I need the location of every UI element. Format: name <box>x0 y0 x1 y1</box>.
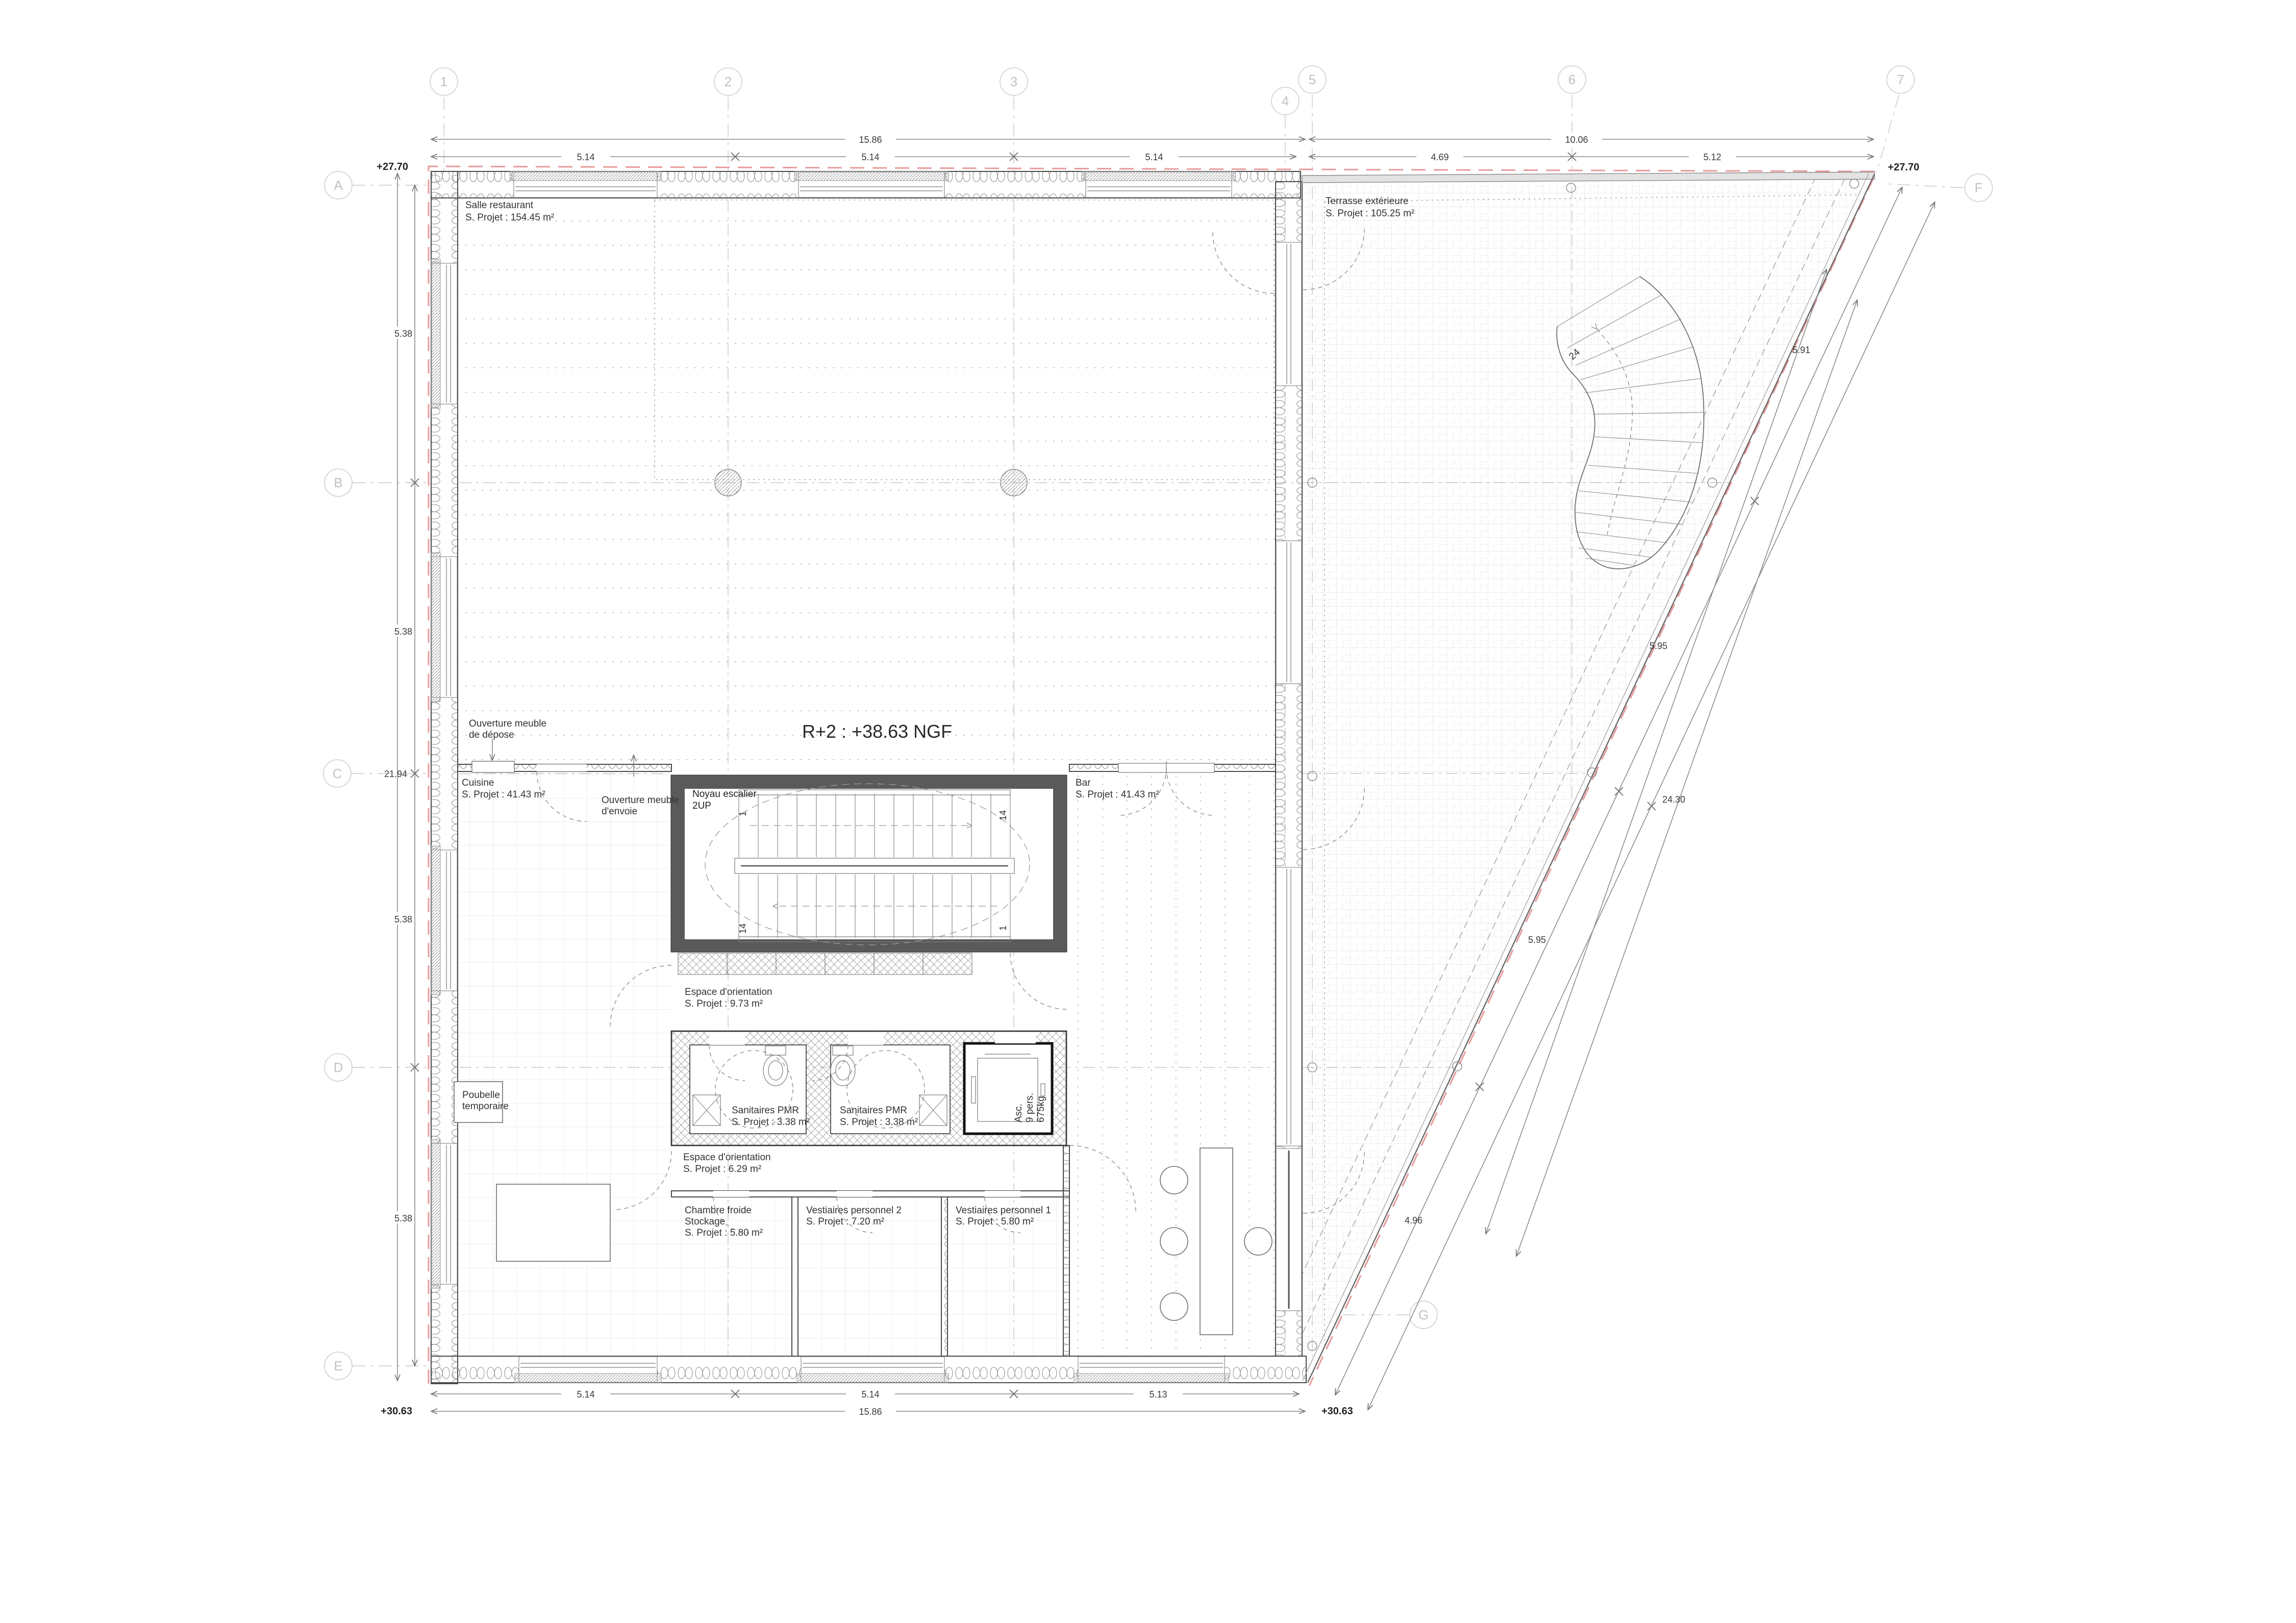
dim-left-seg4: 5.38 <box>394 1213 412 1224</box>
toilet-1 <box>763 1046 788 1086</box>
grid-row-d: D <box>334 1060 343 1075</box>
label-san2-area: S. Projet : 3.38 m² <box>840 1117 918 1128</box>
grid-col-5: 5 <box>1309 72 1316 87</box>
grid-col-3: 3 <box>1010 74 1017 89</box>
window-left-1 <box>431 259 457 408</box>
sanitary-block <box>671 1031 1066 1145</box>
dim-topright-seg1: 4.69 <box>1431 152 1449 162</box>
label-bar-name: Bar <box>1076 778 1091 788</box>
label-terrasse-area: S. Projet : 105.25 m² <box>1326 208 1414 219</box>
dim-top-seg2: 5.14 <box>861 152 879 162</box>
label-title: R+2 : +38.63 NGF <box>802 721 952 742</box>
label-vest1-name: Vestiaires personnel 1 <box>956 1205 1051 1216</box>
label-espace1-name: Espace d'orientation <box>685 987 772 997</box>
dim-slope-seg2: 5.95 <box>1650 641 1667 651</box>
dim-bottom-seg2: 5.14 <box>861 1389 879 1400</box>
label-espace1-area: S. Projet : 9.73 m² <box>685 998 763 1009</box>
label-envoie-1: Ouverture meuble <box>602 795 679 806</box>
label-vest2-name: Vestiaires personnel 2 <box>806 1205 902 1216</box>
dim-slope-seg4: 4.96 <box>1405 1215 1422 1226</box>
stair-mark-14-top: 14 <box>998 810 1008 820</box>
dim-left-overall: 21.94 <box>384 769 407 779</box>
grid-col-7: 7 <box>1897 72 1904 87</box>
grid-col-1: 1 <box>440 74 447 89</box>
dim-bottom-seg3: 5.13 <box>1149 1389 1167 1400</box>
grid-row-c: C <box>333 766 342 781</box>
grid-row-g: G <box>1418 1307 1429 1322</box>
window-left-4 <box>431 1139 457 1288</box>
window-bottom-1 <box>515 1357 661 1383</box>
dim-top-seg3: 5.14 <box>1145 152 1163 162</box>
grid-col-6: 6 <box>1568 72 1576 87</box>
dim-left-seg3: 5.38 <box>394 914 412 925</box>
level-bottom-left: +30.63 <box>381 1406 412 1417</box>
label-asc-1: Asc. <box>1013 1104 1024 1122</box>
stair-mark-1-bot: 1 <box>998 926 1008 931</box>
label-cuisine-name: Cuisine <box>462 778 494 788</box>
window-top-1 <box>510 171 661 197</box>
dim-left-seg2: 5.38 <box>394 627 412 637</box>
dim-slope-overall: 24.30 <box>1662 794 1685 805</box>
pass-through-depose <box>472 761 514 772</box>
label-san2-name: Sanitaires PMR <box>840 1105 907 1116</box>
label-envoie-2: d'envoie <box>602 806 637 817</box>
window-top-2 <box>794 171 949 197</box>
grid-row-f: F <box>1975 180 1983 195</box>
label-asc-3: 675kg <box>1036 1096 1046 1122</box>
level-bottom-right: +30.63 <box>1321 1406 1353 1417</box>
dim-bottom-overall: 15.86 <box>859 1407 882 1417</box>
label-espace2-name: Espace d'orientation <box>683 1152 771 1163</box>
kitchen-table <box>496 1184 610 1261</box>
label-san1-name: Sanitaires PMR <box>732 1105 799 1116</box>
label-salle-area: S. Projet : 154.45 m² <box>465 212 554 223</box>
window-right-3 <box>1276 867 1302 1146</box>
label-asc-2: 9 pers. <box>1025 1093 1035 1122</box>
shower-1 <box>693 1095 720 1126</box>
label-chambre-1: Chambre froide <box>685 1205 752 1216</box>
dim-top-seg1: 5.14 <box>577 152 594 162</box>
dim-slope-seg3: 5.95 <box>1528 935 1546 945</box>
label-depose-2: de dépose <box>469 730 514 740</box>
window-right-2 <box>1276 541 1302 684</box>
dim-top-overall: 15.86 <box>859 135 882 145</box>
label-depose-1: Ouverture meuble <box>469 718 546 729</box>
window-top-3 <box>1082 171 1236 197</box>
label-noyau-sub: 2UP <box>692 801 711 811</box>
level-top-right: +27.70 <box>1888 162 1919 173</box>
stair-core: 1 14 14 1 <box>671 776 1066 975</box>
grid-col-4: 4 <box>1282 93 1289 109</box>
label-chambre-3: S. Projet : 5.80 m² <box>685 1228 763 1238</box>
bar-table <box>1160 1228 1188 1255</box>
grid-row-e: E <box>334 1358 342 1374</box>
label-vest1-area: S. Projet : 5.80 m² <box>956 1216 1034 1227</box>
dim-topright-overall: 10.06 <box>1565 135 1588 145</box>
floor-finishes <box>458 174 1875 1383</box>
window-bottom-3 <box>1074 1357 1229 1383</box>
grid-row-b: B <box>334 475 342 490</box>
label-vest2-area: S. Projet : 7.20 m² <box>806 1216 884 1227</box>
level-top-left: +27.70 <box>377 161 408 172</box>
label-san1-area: S. Projet : 3.38 m² <box>732 1117 810 1128</box>
landing-hatch-band <box>678 953 972 975</box>
door-right-terrace <box>1276 1148 1302 1311</box>
grid-col-2: 2 <box>725 74 732 89</box>
dim-bottom-seg1: 5.14 <box>577 1389 594 1400</box>
dim-topright-seg2: 5.12 <box>1703 152 1721 162</box>
stair-mark-14-bot: 14 <box>738 923 748 934</box>
label-poubelle-1: Poubelle <box>462 1090 500 1101</box>
toilet-2 <box>831 1046 855 1086</box>
bar-table <box>1160 1293 1188 1320</box>
window-left-2 <box>431 553 457 702</box>
window-left-3 <box>431 846 457 995</box>
grid-row-a: A <box>334 178 343 193</box>
label-cuisine-area: S. Projet : 41.43 m² <box>462 789 545 800</box>
label-espace2-area: S. Projet : 6.29 m² <box>683 1164 761 1175</box>
label-chambre-2: Stockage <box>685 1216 725 1227</box>
floor-plan-drawing: 1 2 3 4 5 6 7 F A B C D E G <box>0 0 2296 1623</box>
dim-slope-seg1: 5.91 <box>1792 345 1810 355</box>
label-poubelle-2: temporaire <box>462 1101 509 1112</box>
window-right-1 <box>1276 242 1302 386</box>
bar-table <box>1244 1228 1272 1255</box>
stair-mark-1-top: 1 <box>738 811 748 816</box>
bar-table <box>1160 1166 1188 1194</box>
dim-left-seg1: 5.38 <box>394 329 412 339</box>
label-terrasse-name: Terrasse extérieure <box>1326 196 1409 207</box>
window-bottom-2 <box>797 1357 949 1383</box>
label-bar-area: S. Projet : 41.43 m² <box>1076 789 1159 800</box>
label-noyau-name: Noyau escalier <box>692 789 757 800</box>
label-salle-name: Salle restaurant <box>465 200 534 211</box>
bar-counter <box>1200 1148 1233 1335</box>
shower-2 <box>919 1095 947 1126</box>
